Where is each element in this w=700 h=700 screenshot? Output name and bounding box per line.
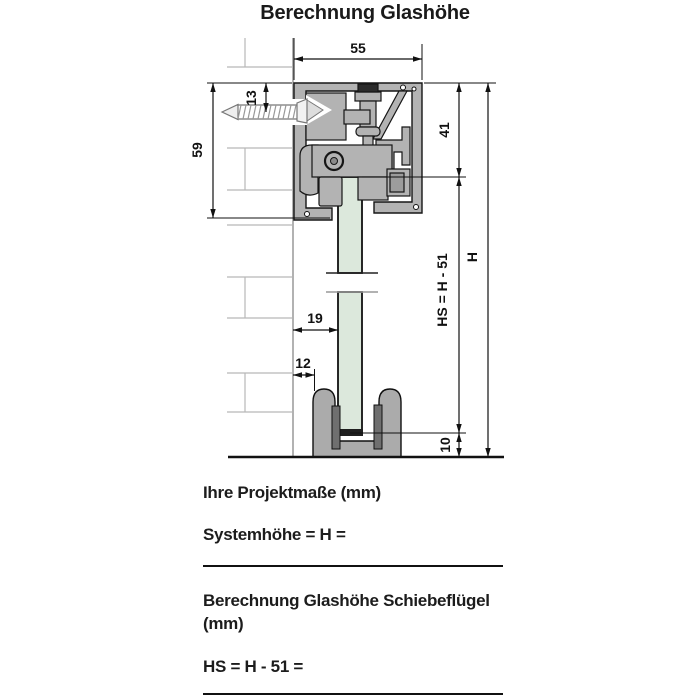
divider-rule [203, 565, 503, 567]
calc-heading-line2: (mm) [203, 614, 243, 633]
arrowhead [456, 177, 461, 186]
dim-label: 55 [350, 40, 366, 56]
glass-clamp-right [358, 177, 388, 200]
arrowhead [485, 448, 490, 457]
dimension-h: H [464, 83, 491, 457]
arrowhead [294, 56, 303, 61]
glass-height-label: HS = H - 51 = [203, 656, 303, 679]
hanger-bolt-base [355, 92, 381, 101]
dimension-41: 41 [436, 83, 462, 177]
arrowhead [456, 424, 461, 433]
arrowhead [413, 56, 422, 61]
guide-pad-left [332, 406, 340, 449]
dimension-59: 59 [189, 83, 216, 218]
dim-label: 12 [295, 355, 311, 371]
calc-heading: Berechnung Glashöhe Schiebeflügel (mm) [203, 590, 523, 636]
roller-axle [331, 158, 338, 165]
screw-channel [414, 205, 419, 210]
wall-hatch [227, 38, 292, 412]
arrowhead [456, 448, 461, 457]
arrowhead [210, 209, 215, 218]
glass-lower-segment [338, 292, 362, 433]
dim-label: 13 [243, 90, 259, 106]
technical-drawing-page: Berechnung Glashöhe [0, 0, 700, 700]
dim-label: 10 [437, 437, 453, 453]
divider-rule [203, 693, 503, 695]
section-drawing: 55 13 59 41 [0, 0, 700, 475]
dimension-19: 19 [293, 310, 338, 333]
glass-clamp-left [319, 177, 342, 206]
system-height-label: Systemhöhe = H = [203, 524, 346, 547]
dimension-55: 55 [294, 40, 422, 62]
dim-label: 19 [307, 310, 323, 326]
dimension-hs: HS = H - 51 [434, 177, 462, 433]
screw-channel [412, 87, 416, 91]
screw-channel [305, 212, 310, 217]
hanger-bolt-nut [356, 127, 380, 136]
clamp-end-insert [390, 173, 404, 192]
page-title: Berechnung Glashöhe [180, 2, 550, 25]
arrowhead [306, 372, 315, 377]
screw-channel [401, 85, 406, 90]
guide-pad-right [374, 405, 382, 449]
link-bar [344, 110, 370, 124]
screw-neck [297, 99, 307, 123]
mounting-screw [221, 99, 307, 125]
calc-heading-line1: Berechnung Glashöhe Schiebeflügel [203, 591, 490, 610]
dim-label: 41 [436, 122, 452, 138]
dimension-10: 10 [437, 433, 462, 457]
arrowhead [263, 83, 268, 92]
arrowhead [456, 83, 461, 92]
hanger-bolt-cap [358, 84, 378, 92]
dim-label: 59 [189, 142, 205, 158]
dim-label: HS = H - 51 [434, 253, 450, 327]
arrowhead [456, 433, 461, 442]
arrowhead [485, 83, 490, 92]
arrowhead [293, 372, 302, 377]
arrowhead [456, 168, 461, 177]
arrowhead [329, 327, 338, 332]
arrowhead [210, 83, 215, 92]
project-measures-heading: Ihre Projektmaße (mm) [203, 482, 381, 505]
dim-label: H [464, 252, 480, 262]
dimension-12: 12 [293, 355, 315, 378]
arrowhead [293, 327, 302, 332]
